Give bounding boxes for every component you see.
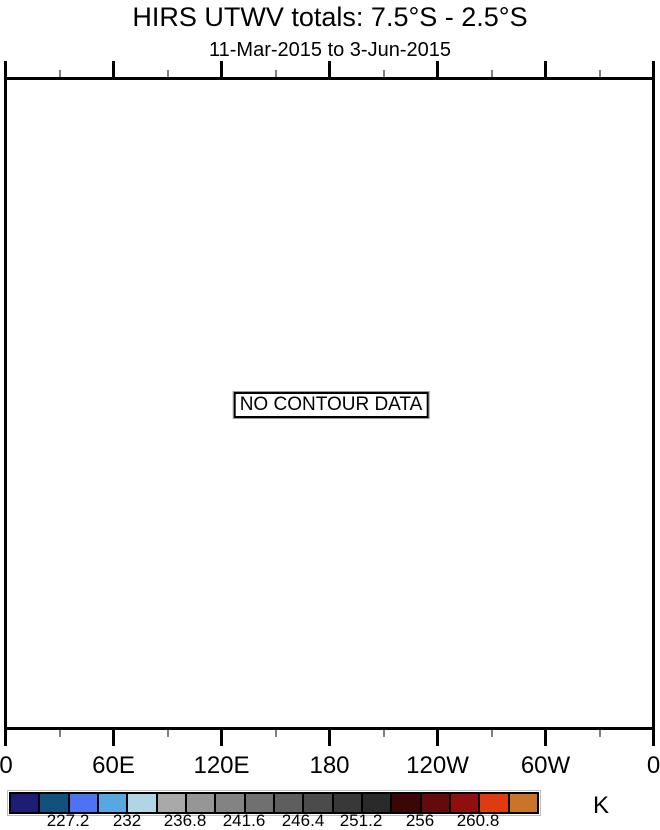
x-axis-tick-label: 120E [193,753,249,779]
x-axis-bottom-major-tick [436,730,439,746]
colorbar-segment [392,794,421,812]
x-axis-bottom-major-tick [112,730,115,746]
x-axis-bottom-minor-tick [59,730,61,737]
colorbar-segment [363,794,392,812]
colorbar-segment [158,794,187,812]
x-axis-tick-label: 0 [647,753,660,779]
colorbar-segment [216,794,245,812]
x-axis-top-major-tick [544,61,547,77]
colorbar-tick-label: 227.2 [47,811,90,830]
colorbar-segment [451,794,480,812]
colorbar-tick-label: 232 [113,811,141,830]
no-contour-data-box: NO CONTOUR DATA [234,392,429,418]
x-axis-top-major-tick [328,61,331,77]
x-axis-top-minor-tick [599,70,601,77]
colorbar-segment [275,794,304,812]
no-contour-data-label: NO CONTOUR DATA [240,394,423,415]
x-axis-tick-label: 60W [521,753,570,779]
colorbar-segment [480,794,509,812]
x-axis-bottom-major-tick [544,730,547,746]
colorbar-tick-label: 246.4 [282,811,325,830]
x-axis-bottom-minor-tick [383,730,385,737]
x-axis-top-major-tick [112,61,115,77]
page-subtitle: 11-Mar-2015 to 3-Jun-2015 [0,38,660,62]
x-axis-bottom-minor-tick [167,730,169,737]
colorbar-tick-label: 256 [406,811,434,830]
x-axis-bottom-major-tick [220,730,223,746]
x-axis-bottom-major-tick [328,730,331,746]
colorbar-tick-label: 236.8 [164,811,207,830]
x-axis-bottom-minor-tick [491,730,493,737]
x-axis-top-minor-tick [383,70,385,77]
colorbar-segment [304,794,333,812]
x-axis-top-major-tick [652,61,655,77]
x-axis-top-minor-tick [59,70,61,77]
colorbar-unit-label: K [593,793,609,819]
colorbar-segment [70,794,99,812]
colorbar-segment [187,794,216,812]
x-axis-top-minor-tick [491,70,493,77]
x-axis-top-minor-tick [167,70,169,77]
page-title: HIRS UTWV totals: 7.5°S - 2.5°S [0,2,660,32]
colorbar-segment [40,794,69,812]
colorbar-segment [246,794,275,812]
colorbar-segment [510,794,537,812]
colorbar-tick-label: 251.2 [340,811,383,830]
colorbar-tick-label: 260.8 [457,811,500,830]
x-axis-top-major-tick [436,61,439,77]
x-axis-tick-label: 60E [92,753,135,779]
x-axis-top-major-tick [4,61,7,77]
x-axis-top-minor-tick [275,70,277,77]
x-axis-tick-label: 120W [406,753,469,779]
x-axis-bottom-minor-tick [275,730,277,737]
x-axis-bottom-major-tick [4,730,7,746]
x-axis-bottom-minor-tick [599,730,601,737]
colorbar-segment [334,794,363,812]
colorbar-segment [11,794,40,812]
x-axis-top-major-tick [220,61,223,77]
colorbar-segment [99,794,128,812]
x-axis-tick-label: 180 [309,753,349,779]
colorbar-tick-label: 241.6 [223,811,266,830]
colorbar-segment [128,794,157,812]
colorbar-segment [422,794,451,812]
x-axis-tick-label: 0 [0,753,13,779]
plot-canvas: HIRS UTWV totals: 7.5°S - 2.5°S 11-Mar-2… [0,0,660,830]
x-axis-bottom-major-tick [652,730,655,746]
